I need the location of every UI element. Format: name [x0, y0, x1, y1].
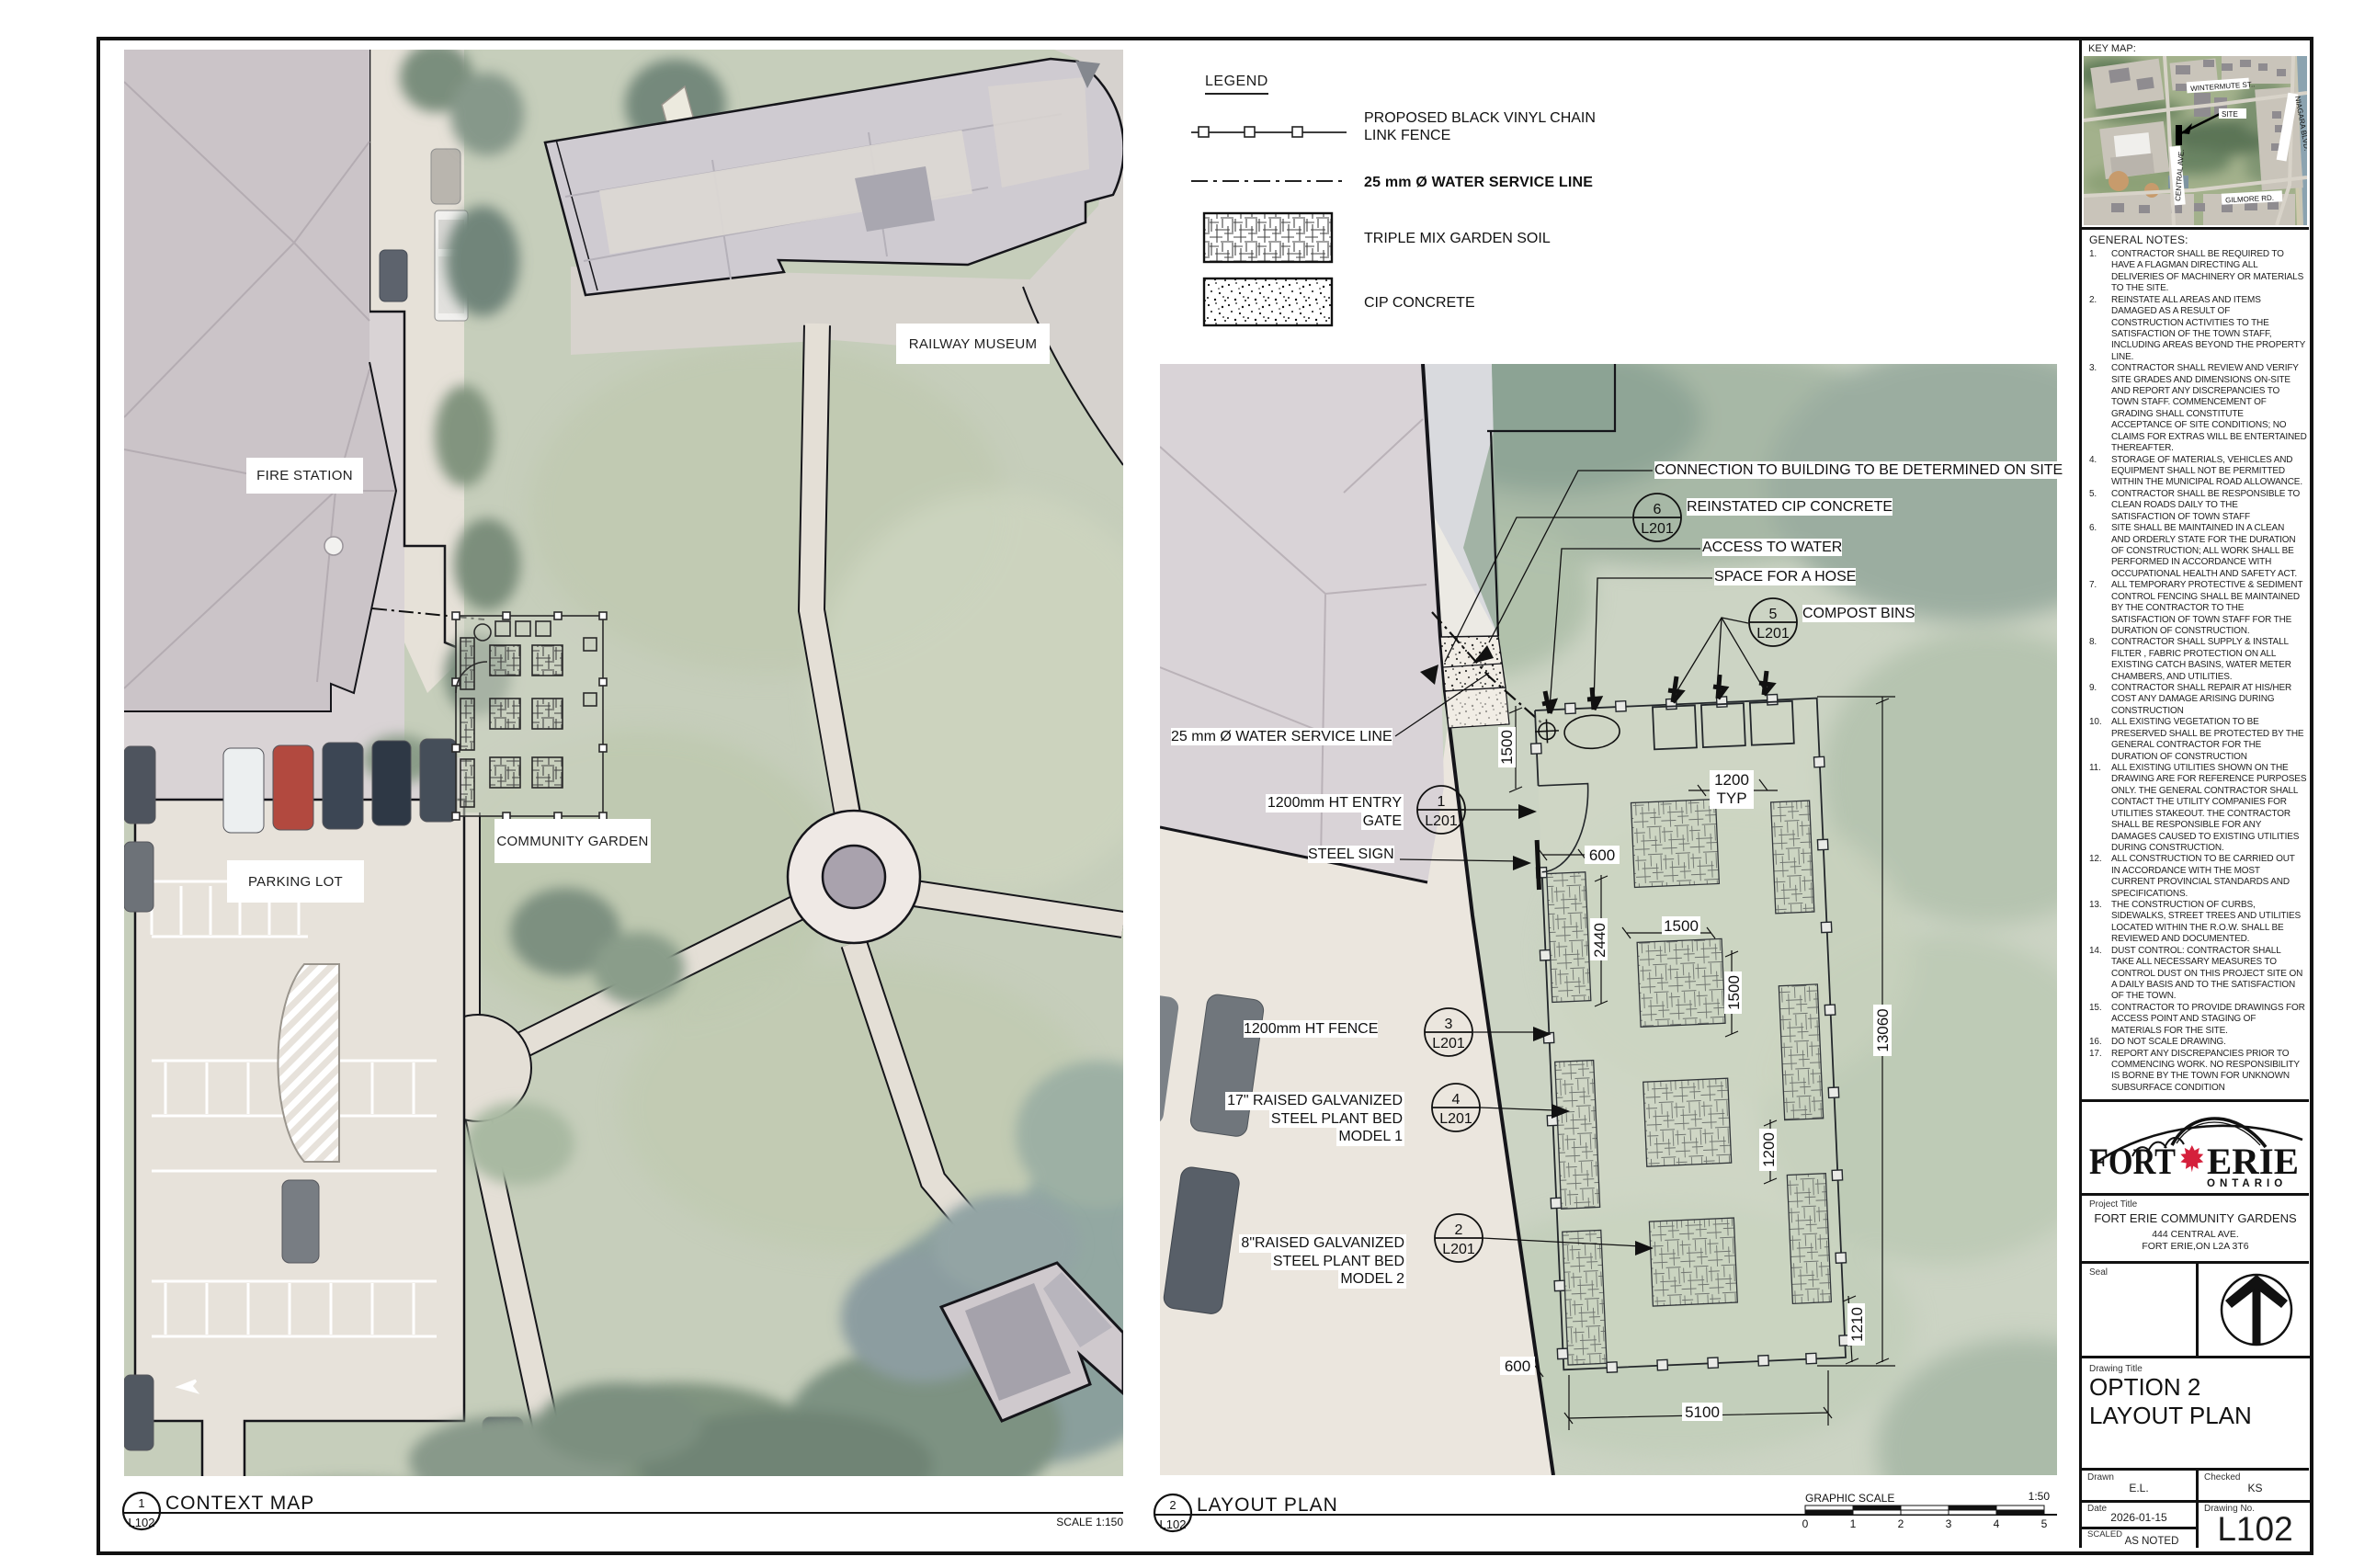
svg-text:1200: 1200: [1714, 771, 1749, 789]
svg-text:600: 600: [1505, 1358, 1530, 1375]
svg-text:TYP: TYP: [1716, 790, 1746, 807]
svg-text:FORT: FORT: [2089, 1141, 2176, 1182]
svg-text:13060: 13060: [1874, 1008, 1892, 1051]
svg-text:3: 3: [1946, 1517, 1952, 1530]
svg-text:ERIE: ERIE: [2207, 1141, 2299, 1182]
svg-text:5: 5: [1769, 607, 1778, 622]
svg-text:L201: L201: [1442, 1242, 1475, 1257]
svg-text:GRAPHIC SCALE: GRAPHIC SCALE: [1805, 1492, 1894, 1505]
svg-text:1210: 1210: [1848, 1307, 1866, 1342]
svg-text:L201: L201: [1439, 1111, 1472, 1127]
svg-text:4: 4: [1994, 1517, 2000, 1530]
svg-text:1500: 1500: [1498, 730, 1516, 765]
svg-text:SCALE 1:150: SCALE 1:150: [1056, 1516, 1123, 1528]
svg-text:L201: L201: [1425, 813, 1458, 829]
svg-text:2: 2: [1169, 1498, 1176, 1512]
svg-text:6: 6: [1654, 502, 1662, 517]
svg-text:L102: L102: [129, 1516, 155, 1529]
svg-text:ONTARIO: ONTARIO: [2207, 1178, 2287, 1189]
svg-text:SITE: SITE: [2222, 110, 2238, 119]
svg-text:1:50: 1:50: [2029, 1490, 2051, 1503]
svg-text:3: 3: [1445, 1017, 1453, 1032]
svg-text:600: 600: [1589, 846, 1615, 864]
svg-text:2: 2: [1455, 1222, 1463, 1238]
svg-text:L201: L201: [1432, 1036, 1465, 1051]
svg-text:1: 1: [1850, 1517, 1857, 1530]
svg-text:LAYOUT PLAN: LAYOUT PLAN: [1197, 1494, 1338, 1516]
svg-text:CONTEXT MAP: CONTEXT MAP: [165, 1493, 314, 1514]
svg-text:5: 5: [2041, 1517, 2048, 1530]
svg-text:1500: 1500: [1725, 975, 1743, 1010]
svg-text:2: 2: [1898, 1517, 1904, 1530]
svg-text:L201: L201: [1756, 626, 1790, 642]
svg-text:L201: L201: [1641, 521, 1674, 537]
svg-text:1: 1: [1438, 794, 1446, 810]
svg-text:L102: L102: [1160, 1517, 1187, 1531]
svg-text:2440: 2440: [1591, 923, 1608, 958]
svg-text:1500: 1500: [1664, 917, 1699, 935]
svg-text:4: 4: [1452, 1092, 1461, 1108]
svg-text:5100: 5100: [1685, 1403, 1720, 1421]
svg-text:1: 1: [138, 1496, 144, 1510]
svg-text:1200: 1200: [1760, 1132, 1778, 1167]
svg-text:0: 0: [1802, 1517, 1809, 1530]
